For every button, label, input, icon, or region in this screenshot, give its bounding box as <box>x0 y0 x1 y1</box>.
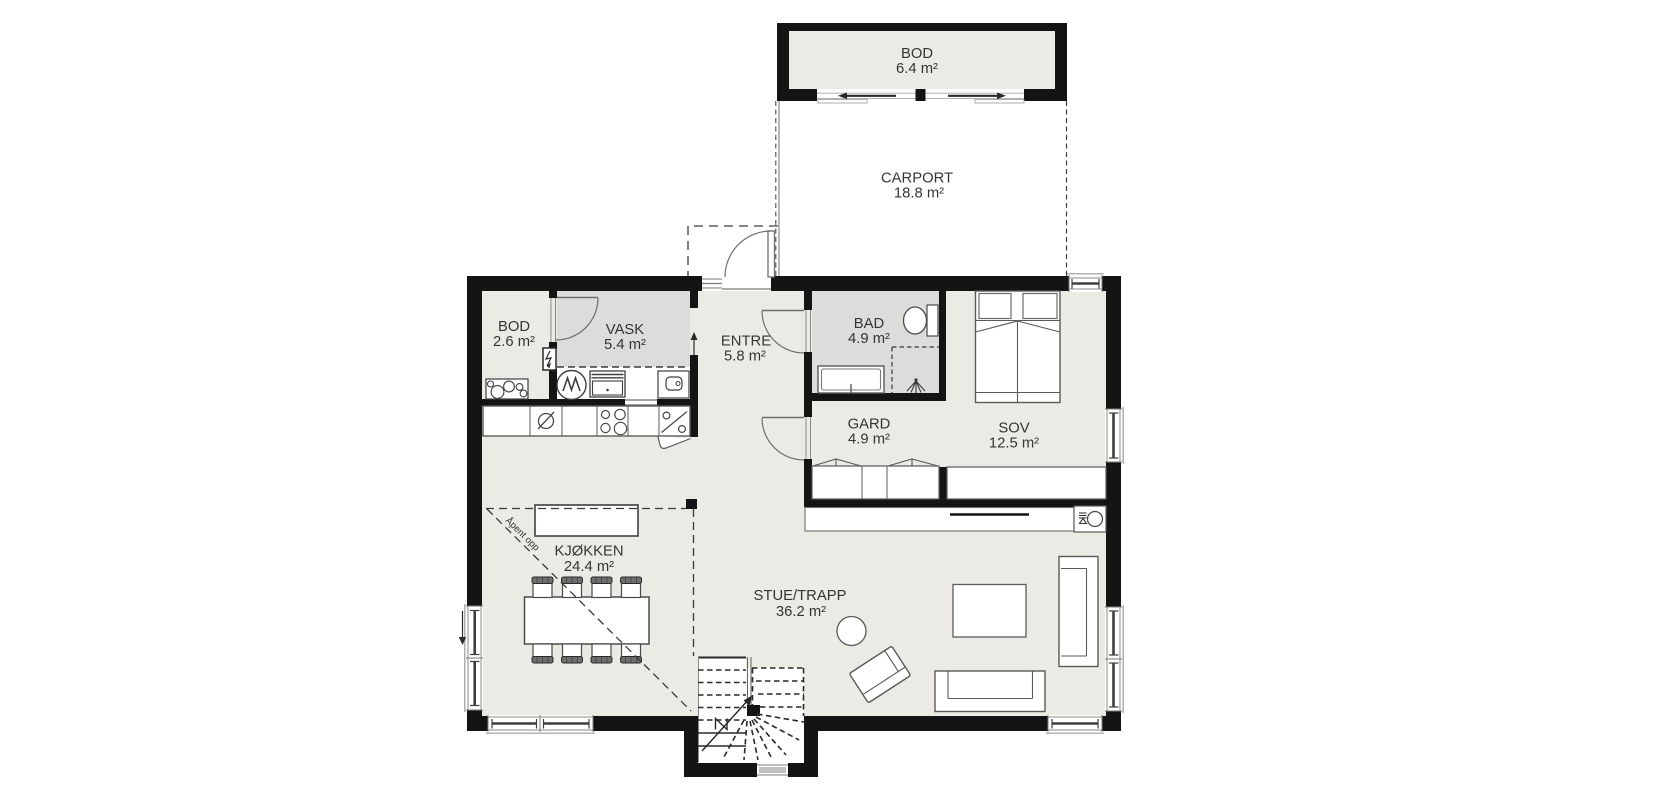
svg-text:24.4 m²: 24.4 m² <box>564 559 614 575</box>
svg-text:4.9 m²: 4.9 m² <box>848 432 890 448</box>
svg-text:BAD: BAD <box>854 316 884 332</box>
svg-text:36.2 m²: 36.2 m² <box>776 604 826 620</box>
svg-text:ENTRE: ENTRE <box>721 334 771 350</box>
svg-text:5.4 m²: 5.4 m² <box>604 337 646 353</box>
svg-text:6.4 m²: 6.4 m² <box>896 61 938 77</box>
svg-text:BOD: BOD <box>498 319 530 335</box>
svg-text:2.6 m²: 2.6 m² <box>493 334 535 350</box>
svg-text:KJØKKEN: KJØKKEN <box>554 544 623 560</box>
svg-text:VASK: VASK <box>606 322 645 338</box>
svg-text:18.8 m²: 18.8 m² <box>894 186 944 202</box>
svg-text:5.8 m²: 5.8 m² <box>724 349 766 365</box>
svg-text:SOV: SOV <box>998 421 1029 437</box>
svg-text:CARPORT: CARPORT <box>881 171 953 187</box>
svg-text:12.5 m²: 12.5 m² <box>989 436 1039 452</box>
svg-text:4.9 m²: 4.9 m² <box>848 331 890 347</box>
svg-text:STUE/TRAPP: STUE/TRAPP <box>754 588 847 604</box>
svg-text:GARD: GARD <box>848 417 891 433</box>
svg-text:BOD: BOD <box>901 46 933 62</box>
